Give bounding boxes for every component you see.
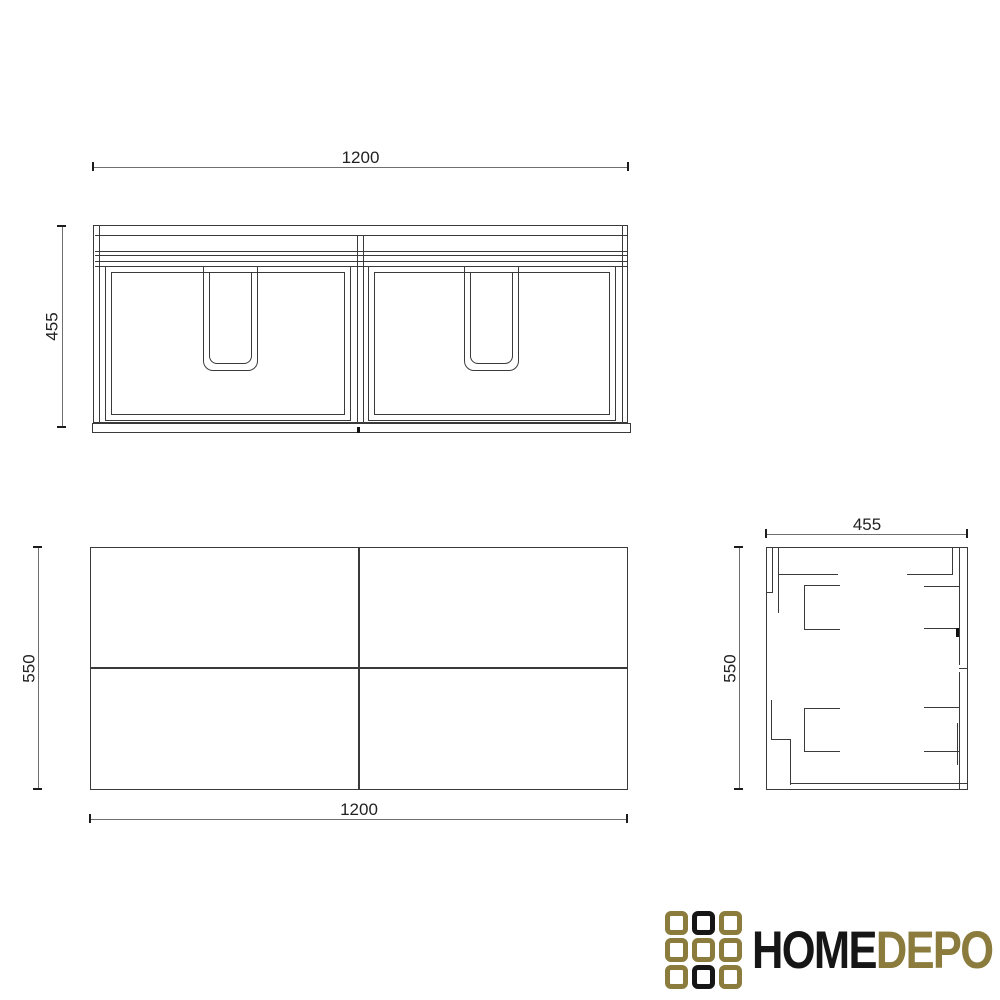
back-panel-line xyxy=(959,548,960,665)
rear-rail-end xyxy=(956,628,959,637)
rear-rail-line xyxy=(924,751,960,752)
drawer-rail-line xyxy=(779,574,838,575)
dimension-label-front-width: 1200 xyxy=(93,149,628,166)
front-edge-line xyxy=(778,548,779,613)
logo-square-gold xyxy=(719,911,742,935)
top-rail-line xyxy=(95,235,627,236)
dimension-line xyxy=(766,534,968,535)
dimension-label-front-height: 455 xyxy=(44,297,61,357)
dimension-label-side-width: 455 xyxy=(766,516,968,533)
dimension-line xyxy=(93,167,628,168)
dimension-label-plan-width: 1200 xyxy=(90,801,628,818)
dimension-tick xyxy=(734,546,743,548)
bottom-rail xyxy=(92,423,631,433)
technical-drawing-canvas: 1200 455 xyxy=(0,0,1000,1000)
dimension-label-side-height: 550 xyxy=(722,639,739,699)
dimension-label-plan-depth: 550 xyxy=(21,639,38,699)
side-outline xyxy=(766,547,968,790)
logo: HOMEDEPO xyxy=(665,905,1000,995)
logo-text-secondary: DEPO xyxy=(876,921,993,980)
rear-rail-line xyxy=(907,574,953,575)
dimension-tick xyxy=(33,788,42,790)
center-divider-line xyxy=(357,235,358,422)
dimension-line xyxy=(90,819,628,820)
rear-rail-line xyxy=(924,586,960,587)
drawer-slide-bracket xyxy=(804,708,840,752)
dimension-line xyxy=(62,226,63,428)
dimension-tick xyxy=(734,788,743,790)
plan-horizontal-divider xyxy=(90,667,628,669)
top-rail-line xyxy=(95,261,627,262)
front-edge-line xyxy=(772,548,773,593)
top-rail-line xyxy=(95,251,627,252)
logo-square-gold xyxy=(665,938,688,962)
logo-grid xyxy=(665,911,742,989)
logo-square-black xyxy=(692,965,715,989)
center-divider-line xyxy=(363,235,364,422)
front-step-line xyxy=(790,739,791,785)
drawer-slide-bracket xyxy=(804,585,840,630)
dimension-tick xyxy=(57,225,66,227)
front-edge-cap xyxy=(767,592,773,593)
back-panel-line xyxy=(959,672,960,789)
front-edge-line xyxy=(771,700,772,740)
front-step-line xyxy=(771,739,791,740)
logo-square-gold xyxy=(719,938,742,962)
logo-square-gold xyxy=(692,938,715,962)
logo-square-gold xyxy=(665,965,688,989)
rear-rail-line xyxy=(924,628,960,629)
logo-text: HOMEDEPO xyxy=(752,924,992,977)
top-rail-line xyxy=(95,255,627,256)
rear-rail-line xyxy=(952,548,953,575)
handle-cutout-left-inner xyxy=(209,272,252,364)
logo-square-gold xyxy=(719,965,742,989)
rear-rail-line xyxy=(924,707,960,708)
logo-square-black xyxy=(692,911,715,935)
bottom-rail-center-joint xyxy=(357,427,360,433)
logo-square-gold xyxy=(665,911,688,935)
dimension-tick xyxy=(57,426,66,428)
back-panel-joint xyxy=(959,668,968,669)
dimension-tick xyxy=(33,546,42,548)
handle-cutout-right-inner xyxy=(470,272,513,364)
bottom-panel-line xyxy=(790,783,967,784)
rear-rail-line xyxy=(957,723,958,765)
logo-text-primary: HOME xyxy=(752,921,876,980)
